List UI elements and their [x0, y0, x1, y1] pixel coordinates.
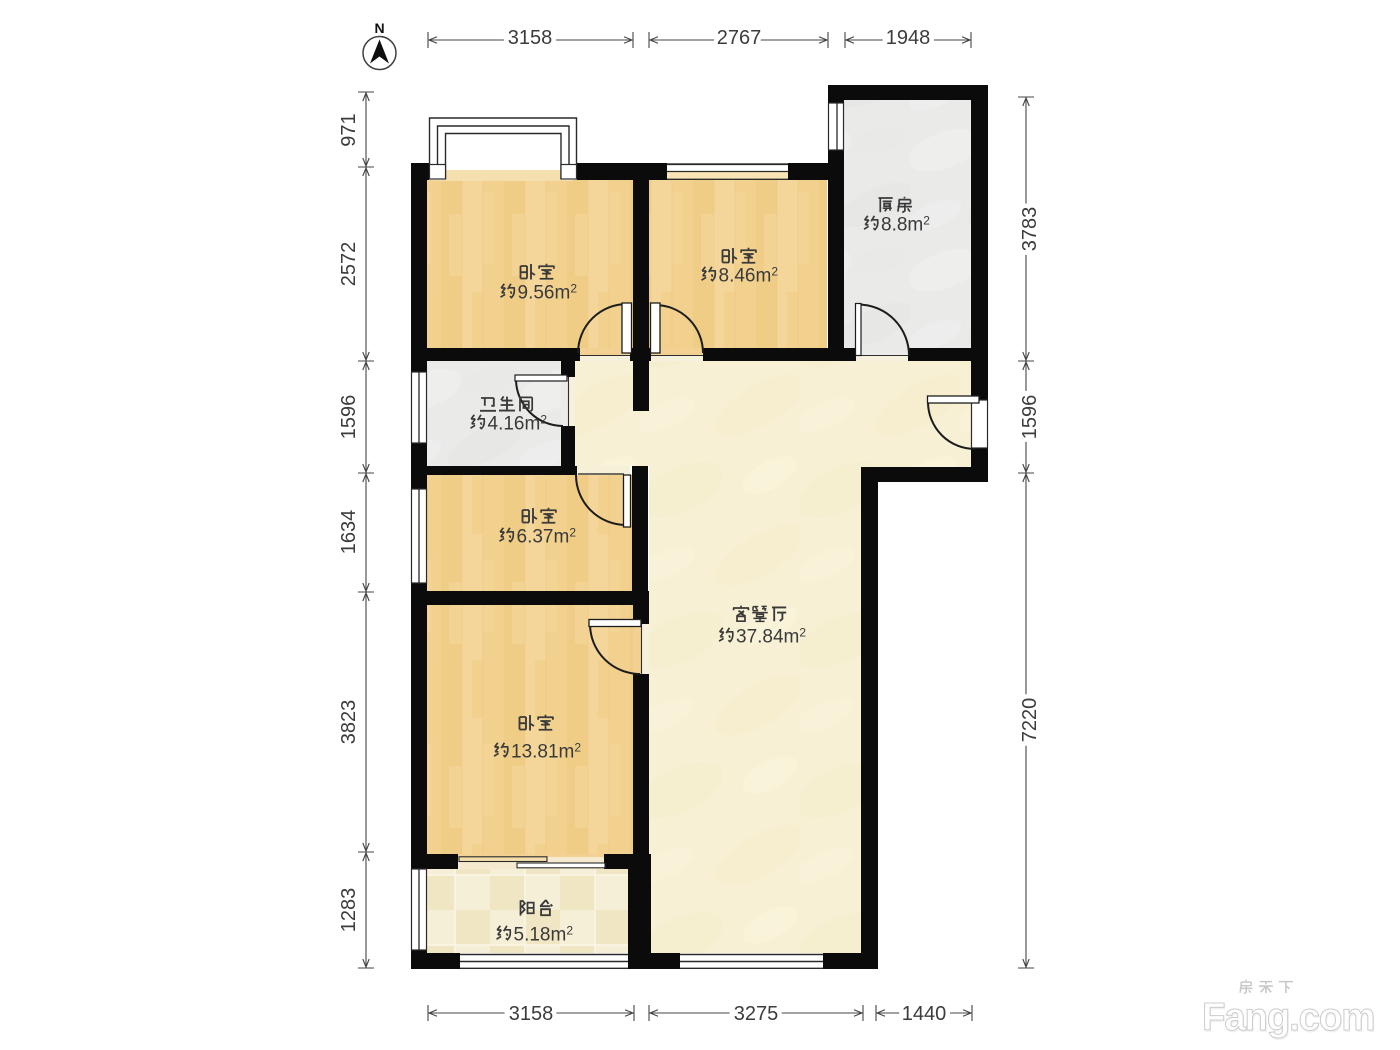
svg-text:9.56m2: 9.56m2	[518, 282, 578, 304]
svg-text:13.81m2: 13.81m2	[511, 741, 581, 763]
svg-text:6.37m2: 6.37m2	[517, 526, 577, 548]
svg-text:1440: 1440	[902, 1003, 947, 1025]
svg-text:3275: 3275	[734, 1003, 779, 1025]
svg-text:3158: 3158	[509, 1003, 554, 1025]
svg-text:N: N	[374, 20, 384, 36]
svg-text:5.18m2: 5.18m2	[514, 924, 574, 946]
svg-text:3158: 3158	[508, 27, 553, 49]
svg-text:1596: 1596	[1019, 395, 1041, 440]
svg-text:7220: 7220	[1019, 698, 1041, 743]
svg-text:1948: 1948	[886, 27, 931, 49]
svg-text:2767: 2767	[717, 27, 762, 49]
svg-text:1283: 1283	[338, 888, 360, 933]
svg-text:2572: 2572	[338, 242, 360, 287]
svg-text:1634: 1634	[338, 510, 360, 555]
svg-text:37.84m2: 37.84m2	[736, 626, 806, 648]
svg-text:4.16m2: 4.16m2	[488, 413, 548, 435]
svg-text:8.8m2: 8.8m2	[881, 214, 930, 236]
svg-text:1596: 1596	[338, 395, 360, 440]
svg-text:8.46m2: 8.46m2	[719, 265, 779, 287]
svg-text:3823: 3823	[338, 700, 360, 745]
svg-text:Fang.com: Fang.com	[1202, 996, 1374, 1039]
svg-text:3783: 3783	[1019, 207, 1041, 252]
svg-text:971: 971	[338, 113, 360, 146]
